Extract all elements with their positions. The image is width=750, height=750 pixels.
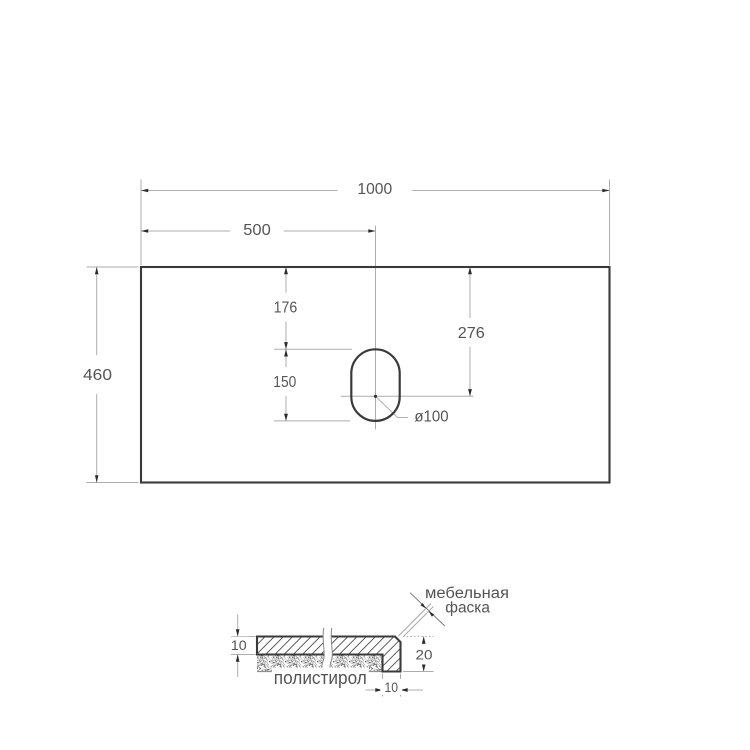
svg-text:150: 150 xyxy=(273,374,296,391)
svg-text:1000: 1000 xyxy=(357,181,392,198)
svg-text:500: 500 xyxy=(243,222,271,239)
svg-text:460: 460 xyxy=(83,367,112,384)
svg-text:ø100: ø100 xyxy=(414,409,448,426)
svg-text:10: 10 xyxy=(384,680,398,696)
svg-text:176: 176 xyxy=(274,300,298,317)
svg-text:полистирол: полистирол xyxy=(274,667,367,688)
svg-text:276: 276 xyxy=(458,325,485,342)
svg-text:10: 10 xyxy=(231,638,247,654)
svg-text:фаска: фаска xyxy=(445,600,490,617)
svg-text:20: 20 xyxy=(416,648,433,664)
